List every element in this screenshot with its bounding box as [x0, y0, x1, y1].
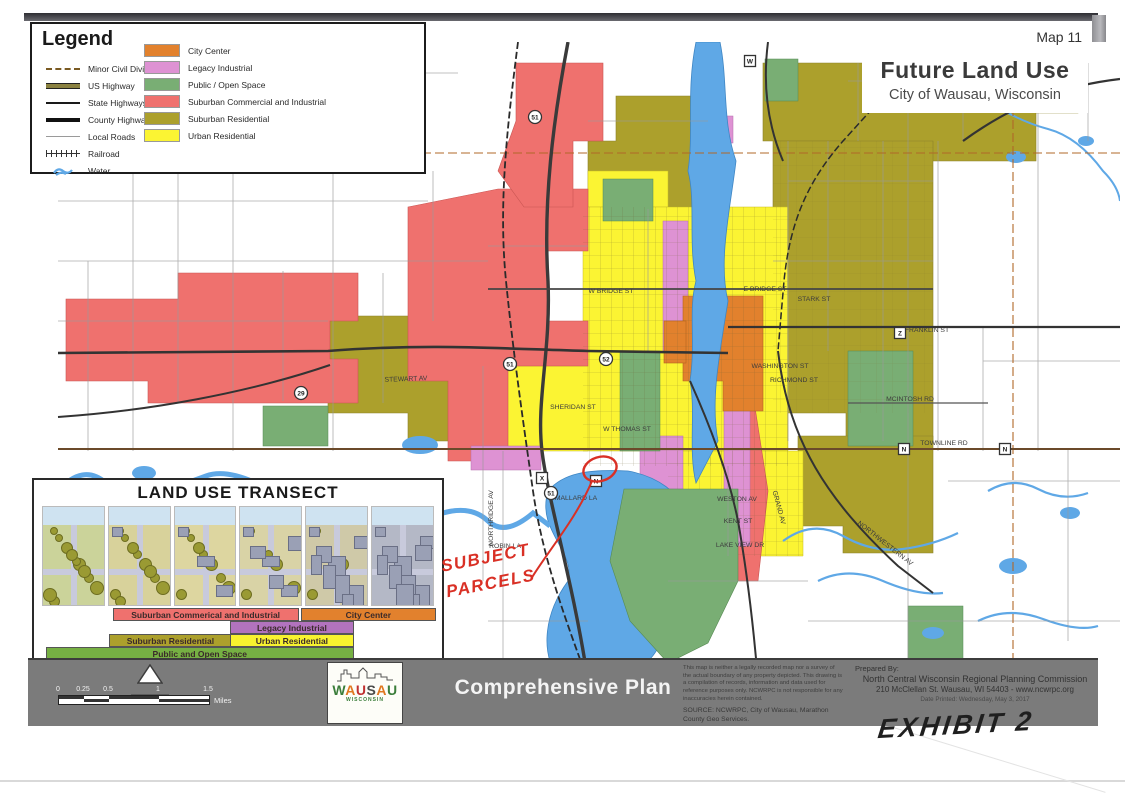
panel-sky [43, 507, 104, 525]
scan-top-edge [24, 13, 1098, 21]
svg-text:N: N [902, 446, 907, 453]
tree-icon [241, 589, 252, 600]
rail-symbol-icon [46, 150, 80, 157]
legend-area-item: Suburban Commercial and Industrial [144, 93, 414, 110]
building-icon [377, 555, 388, 575]
plan-title: Comprehensive Plan [408, 676, 718, 700]
building-icon [375, 527, 386, 537]
county-highway-shield: Z [895, 328, 906, 339]
state-highway-shield: 51 [545, 487, 558, 500]
scale-bar-graphic [58, 695, 210, 705]
prepared-by-name: North Central Wisconsin Regional Plannin… [855, 674, 1095, 684]
scale-segment [84, 699, 109, 702]
state-line [46, 102, 80, 104]
state-highway-shield: 52 [600, 353, 613, 366]
street-label: W BRIDGE ST [589, 288, 634, 295]
land-use-swatch [144, 95, 180, 108]
county-highway-shield: X [537, 473, 548, 484]
scale-tick-label: 0.5 [103, 686, 113, 693]
building-icon [342, 594, 354, 606]
building-icon [216, 585, 233, 597]
street-label: NORTHRIDGE AV [488, 490, 495, 546]
scale-tick-label: 0 [56, 686, 60, 693]
scale-segment [159, 699, 209, 702]
scale-unit: Miles [214, 696, 232, 705]
street-label: FRANKLIN ST [905, 327, 949, 334]
transect-title: LAND USE TRANSECT [34, 483, 442, 503]
building-icon [269, 575, 284, 589]
legend-area-label: Suburban Commercial and Industrial [188, 97, 326, 107]
tree-icon [127, 542, 139, 554]
land-use-swatch [144, 61, 180, 74]
map-number: Map 11 [1036, 29, 1082, 45]
logo-letter: S [367, 682, 377, 698]
tree-icon [66, 549, 78, 561]
logo-wordmark: WAUSAU [328, 683, 402, 697]
street-label: TOWNLINE RD [920, 440, 968, 447]
legend-area-label: Legacy Industrial [188, 63, 252, 73]
building-icon [415, 545, 432, 561]
legend-line-item: Water [46, 162, 176, 179]
transect-bar: Suburban Residential [109, 634, 233, 647]
building-icon [309, 527, 320, 537]
local-line [46, 136, 80, 137]
land-use-swatch [144, 129, 180, 142]
street-label: W THOMAS ST [603, 426, 651, 433]
street-label: RICHMOND ST [770, 377, 818, 384]
legend-line-item: Railroad [46, 145, 176, 162]
legend-line-label: US Highway [88, 81, 135, 91]
tree-icon [115, 596, 126, 606]
legend-area-item: Legacy Industrial [144, 59, 414, 76]
street-label: SHERIDAN ST [550, 404, 596, 411]
street-label: E BRIDGE ST [743, 286, 786, 293]
state-highway-shield: 51 [504, 358, 517, 371]
street-label: STARK ST [798, 296, 831, 303]
scale-bar: 00.250.511.5 Miles [58, 686, 258, 705]
page-title: Future Land Use [862, 57, 1088, 84]
logo-letter: A [345, 682, 356, 698]
building-icon [311, 555, 322, 575]
svg-text:29: 29 [297, 390, 305, 397]
building-icon [178, 527, 189, 537]
transect-bar: Suburban Commerical and Industrial [113, 608, 299, 621]
transect-bars: Suburban Commerical and IndustrialCity C… [42, 608, 434, 660]
prepared-by-block: Prepared By: North Central Wisconsin Reg… [855, 664, 1095, 703]
street-label: KENT ST [724, 518, 753, 525]
legend-area-label: Suburban Residential [188, 114, 269, 124]
page-subtitle: City of Wausau, Wisconsin [862, 87, 1088, 103]
tree-icon [193, 542, 205, 554]
legend-line-label: Local Roads [88, 132, 135, 142]
us-line [46, 83, 80, 89]
street-label: WASHINGTON ST [751, 363, 808, 370]
county-highway-shield: N [899, 444, 910, 455]
building-icon [250, 546, 266, 559]
svg-text:X: X [540, 475, 545, 482]
disclaimer-text: This map is neither a legally recorded m… [683, 665, 843, 703]
local-symbol-icon [46, 136, 80, 137]
tree-icon [90, 581, 104, 595]
scale-segment [109, 699, 159, 702]
legend-line-label: Water [88, 166, 110, 176]
logo-letter: A [376, 682, 387, 698]
legend-area-label: Urban Residential [188, 131, 256, 141]
transect-panel [174, 506, 237, 606]
county-line [46, 118, 80, 122]
svg-text:N: N [1003, 446, 1008, 453]
legend-line-label: Railroad [88, 149, 120, 159]
us-symbol-icon [46, 83, 80, 89]
tree-icon [55, 534, 63, 542]
water-symbol-icon [46, 165, 80, 177]
legend-line-label: State Highways [88, 98, 147, 108]
street-label: LAKE VIEW DR [716, 542, 764, 549]
svg-text:51: 51 [506, 361, 514, 368]
transect-bar: City Center [301, 608, 436, 621]
prepared-by-address: 210 McClellan St. Wausau, WI 54403 - www… [855, 685, 1095, 694]
mcd-symbol-icon [46, 68, 80, 70]
state-highway-shield: 29 [295, 387, 308, 400]
building-icon [323, 565, 336, 589]
transect-panel [371, 506, 434, 606]
disclaimer-block: This map is neither a legally recorded m… [683, 665, 843, 725]
transect-inset: LAND USE TRANSECT Suburban Commerical an… [32, 478, 444, 666]
svg-text:51: 51 [547, 490, 555, 497]
transect-bar: Legacy Industrial [230, 621, 354, 634]
tree-icon [176, 589, 187, 600]
land-use-swatch [144, 112, 180, 125]
tree-icon [216, 573, 226, 583]
building-icon [354, 536, 368, 549]
svg-text:52: 52 [602, 356, 610, 363]
legend-area-item: Urban Residential [144, 127, 414, 144]
wausau-logo: WAUSAU WISCONSIN [327, 662, 403, 724]
legend-area-item: Suburban Residential [144, 110, 414, 127]
street-label: MCINTOSH RD [886, 396, 934, 403]
county-symbol-icon [46, 118, 80, 122]
scale-ticks: 00.250.511.5 [58, 686, 258, 695]
building-icon [112, 527, 123, 537]
tree-icon [144, 565, 157, 578]
tree-icon [43, 588, 57, 602]
tree-icon [307, 589, 318, 600]
scale-segment [59, 699, 84, 702]
date-printed: Date Printed: Wednesday, May 3, 2017 [855, 696, 1095, 703]
panel-sky [240, 507, 301, 525]
county-highway-shield: N [1000, 444, 1011, 455]
north-arrow-icon [137, 664, 163, 684]
legend-area-label: City Center [188, 46, 231, 56]
state-symbol-icon [46, 102, 80, 104]
county-highway-shield: W [745, 56, 756, 67]
transect-panel [108, 506, 171, 606]
svg-text:W: W [747, 58, 754, 65]
transect-panel [305, 506, 368, 606]
panel-sky [372, 507, 433, 525]
building-icon [243, 527, 254, 537]
tree-icon [78, 565, 91, 578]
mcd-line [46, 68, 80, 70]
skyline-icon [335, 666, 395, 682]
panel-sky [109, 507, 170, 525]
logo-letter: U [356, 682, 367, 698]
legend-area-label: Public / Open Space [188, 80, 266, 90]
title-block: Map 11 Future Land Use City of Wausau, W… [862, 25, 1088, 113]
panel-sky [175, 507, 236, 525]
tree-icon [156, 581, 170, 595]
street-label: WESTON AV [717, 496, 757, 503]
svg-text:Z: Z [898, 330, 902, 337]
logo-letter: W [332, 682, 345, 698]
legend-area-items: City CenterLegacy IndustrialPublic / Ope… [144, 42, 414, 144]
legend-panel: Legend Minor Civil DivisionsUS HighwaySt… [30, 22, 426, 174]
svg-text:51: 51 [531, 114, 539, 121]
legend-area-item: Public / Open Space [144, 76, 414, 93]
transect-panels [42, 506, 434, 606]
scale-tick-label: 1 [156, 686, 160, 693]
legend-area-item: City Center [144, 42, 414, 59]
building-icon [288, 536, 302, 551]
scale-tick-label: 1.5 [203, 686, 213, 693]
transect-panel [42, 506, 105, 606]
building-icon [197, 556, 215, 567]
land-use-swatch [144, 78, 180, 91]
transect-panel [239, 506, 302, 606]
state-highway-shield: 51 [529, 111, 542, 124]
scale-tick-label: 0.25 [76, 686, 90, 693]
logo-letter: U [387, 682, 398, 698]
prepared-by-label: Prepared By: [855, 664, 1095, 673]
source-text: SOURCE: NCWRPC, City of Wausau, Marathon… [683, 707, 843, 725]
transect-bar: Urban Residential [230, 634, 354, 647]
street-label: MALLARD LA [555, 495, 598, 502]
legend-title: Legend [42, 28, 113, 51]
rail-line [46, 150, 80, 157]
panel-sky [306, 507, 367, 525]
east-parcel-grid [773, 141, 933, 413]
land-use-swatch [144, 44, 180, 57]
building-icon [396, 584, 414, 606]
